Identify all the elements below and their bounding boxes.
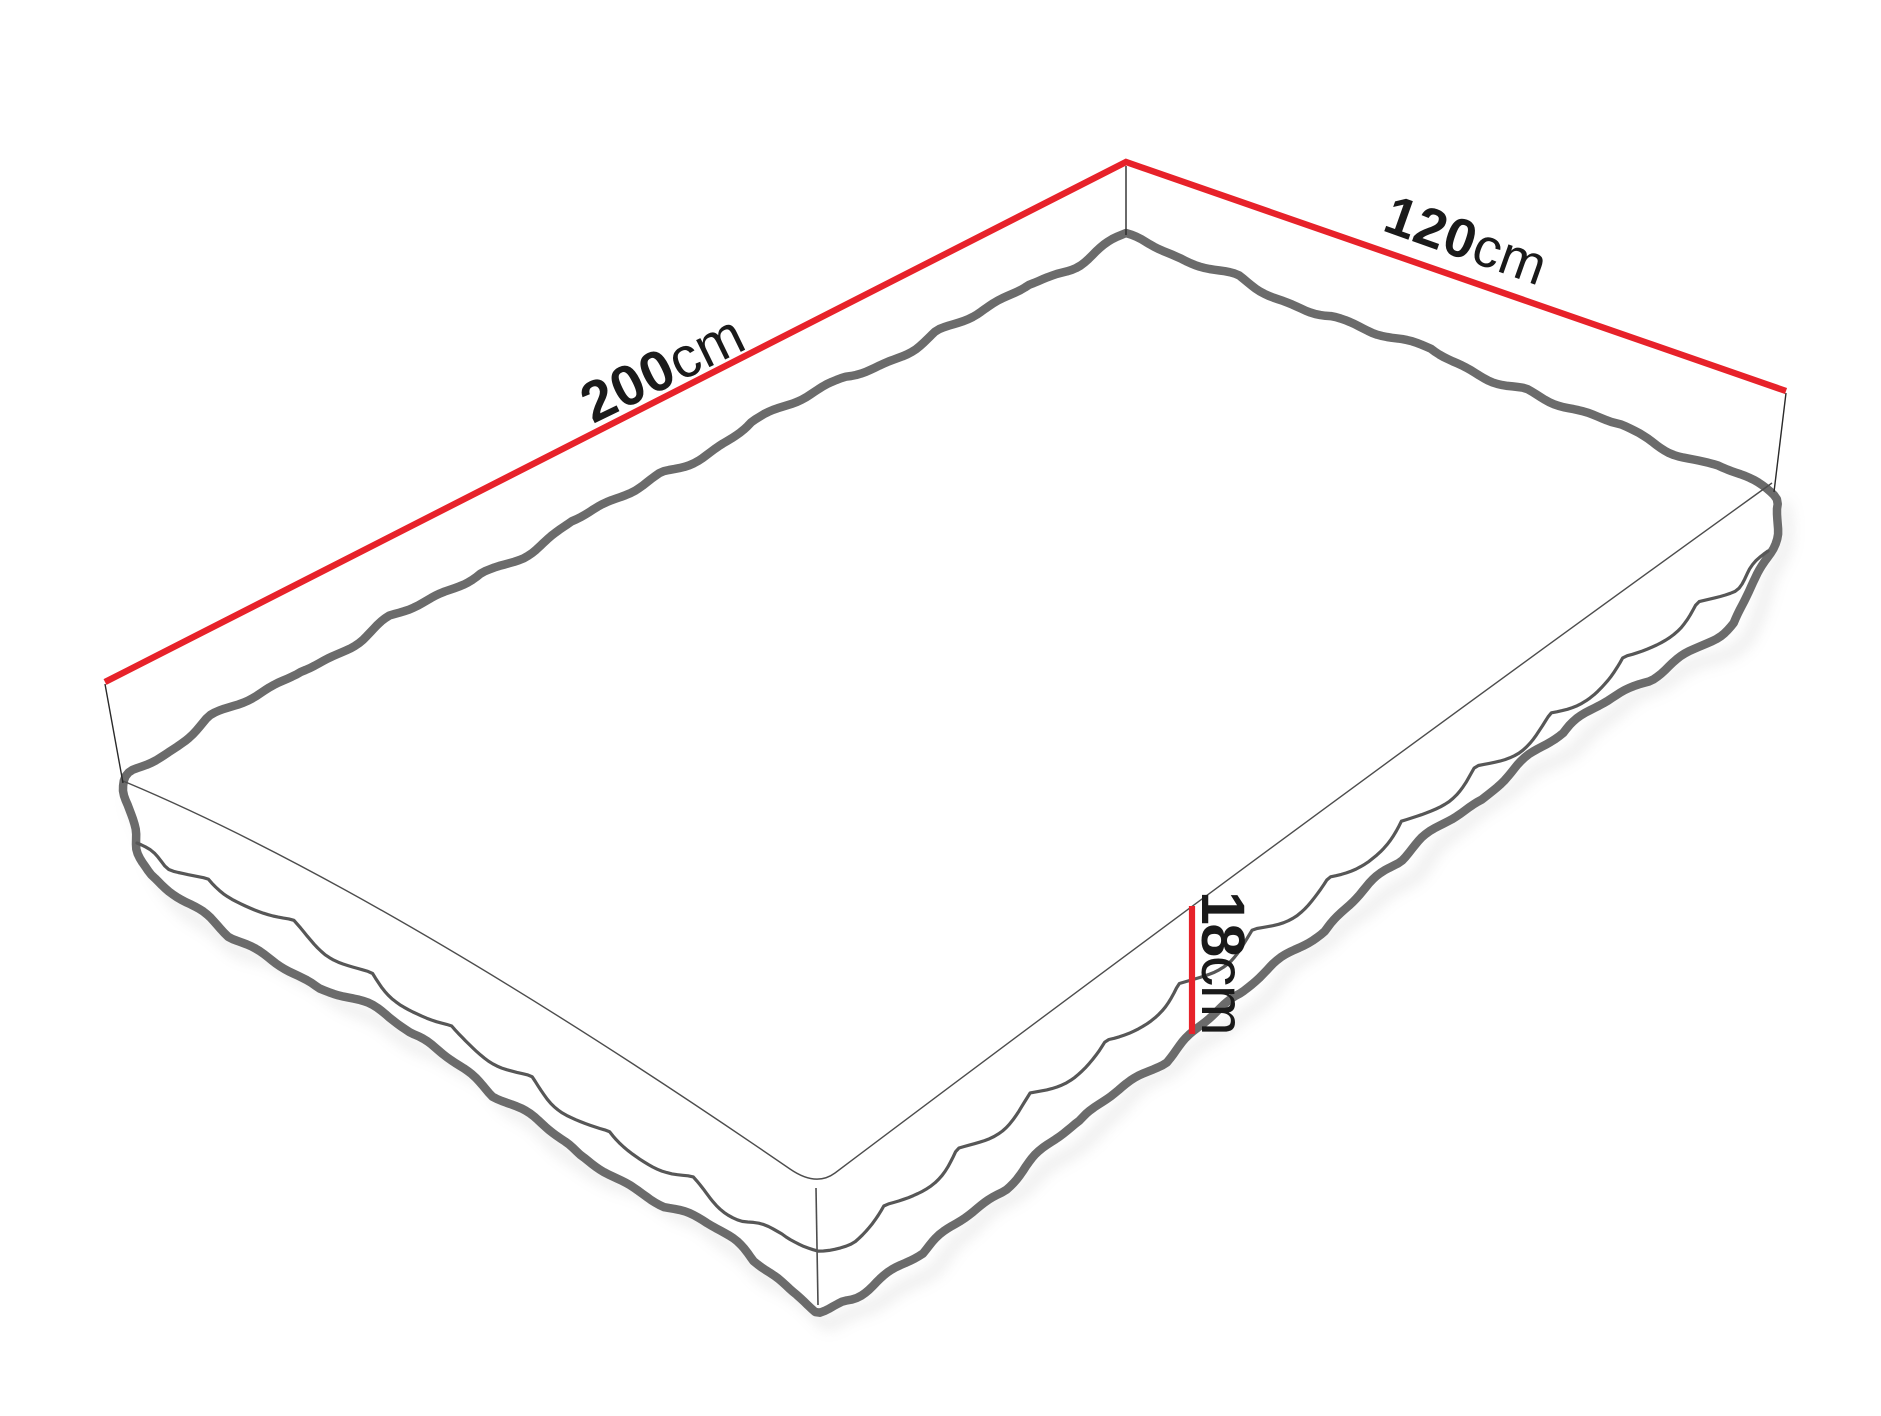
svg-text:18cm: 18cm: [1189, 891, 1257, 1034]
